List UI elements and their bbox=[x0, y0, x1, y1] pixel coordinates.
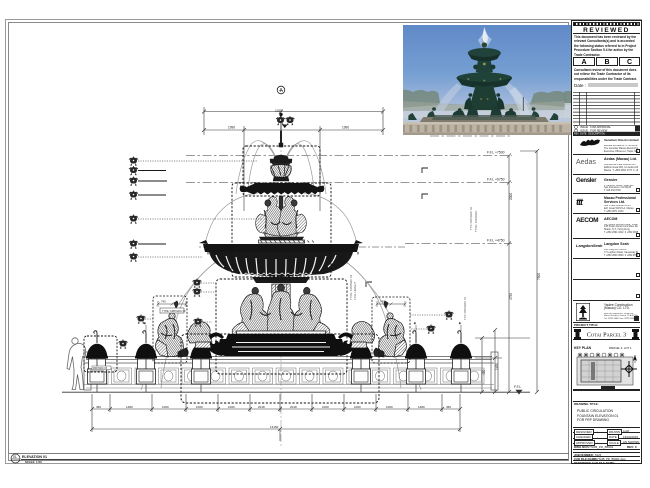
svg-text:1060: 1060 bbox=[322, 405, 329, 409]
svg-text:F.F.L: F.F.L bbox=[514, 385, 521, 389]
svg-text:F.F.L +4750: F.F.L +4750 bbox=[487, 239, 505, 243]
svg-text:TYP. FRP/GRC 02: TYP. FRP/GRC 02 bbox=[469, 206, 473, 230]
svg-text:2000: 2000 bbox=[509, 193, 513, 200]
svg-text:FRP/GRC 05: FRP/GRC 05 bbox=[93, 367, 108, 370]
svg-text:SCALE 1:50: SCALE 1:50 bbox=[25, 460, 42, 464]
svg-text:c: c bbox=[414, 321, 416, 325]
svg-text:1060: 1060 bbox=[196, 405, 203, 409]
svg-text:1480: 1480 bbox=[126, 405, 133, 409]
svg-text:2018: 2018 bbox=[290, 405, 297, 409]
svg-text:F.F.L +7500: F.F.L +7500 bbox=[487, 151, 505, 155]
svg-text:1990: 1990 bbox=[228, 126, 235, 130]
svg-text:ELEVATION 01: ELEVATION 01 bbox=[22, 455, 47, 459]
svg-text:COTAI PARCEL 3: COTAI PARCEL 3 bbox=[587, 332, 626, 339]
svg-text:450: 450 bbox=[446, 405, 451, 409]
svg-text:FULL HEIGHT: FULL HEIGHT bbox=[353, 282, 357, 300]
svg-text:01: 01 bbox=[13, 455, 17, 459]
svg-text:TYP. FRP/GRC 01: TYP. FRP/GRC 01 bbox=[463, 296, 467, 320]
svg-text:TYPE: FRP/GRC 03: TYPE: FRP/GRC 03 bbox=[162, 309, 186, 313]
svg-text:745: 745 bbox=[161, 300, 166, 304]
svg-text:13150: 13150 bbox=[270, 425, 279, 429]
svg-text:c: c bbox=[144, 321, 146, 325]
svg-text:1155: 1155 bbox=[275, 109, 282, 113]
svg-text:1450: 1450 bbox=[495, 363, 499, 370]
svg-text:F.F.L +6750: F.F.L +6750 bbox=[487, 178, 505, 182]
svg-text:1060: 1060 bbox=[354, 405, 361, 409]
svg-text:4750: 4750 bbox=[509, 293, 513, 300]
svg-text:ISSUE FOR APPROVAL: ISSUE FOR APPROVAL bbox=[580, 125, 611, 129]
svg-text:1990: 1990 bbox=[342, 126, 349, 130]
svg-text:TYPE: FRP/GRC: TYPE: FRP/GRC bbox=[474, 211, 478, 232]
svg-text:1480: 1480 bbox=[418, 405, 425, 409]
svg-text:7500: 7500 bbox=[537, 273, 541, 280]
svg-text:1060: 1060 bbox=[162, 405, 169, 409]
svg-text:1060: 1060 bbox=[386, 405, 393, 409]
svg-text:c: c bbox=[459, 321, 461, 325]
svg-text:745: 745 bbox=[380, 300, 385, 304]
svg-text:450: 450 bbox=[96, 405, 101, 409]
svg-text:1060: 1060 bbox=[228, 405, 235, 409]
svg-text:2018: 2018 bbox=[258, 405, 265, 409]
